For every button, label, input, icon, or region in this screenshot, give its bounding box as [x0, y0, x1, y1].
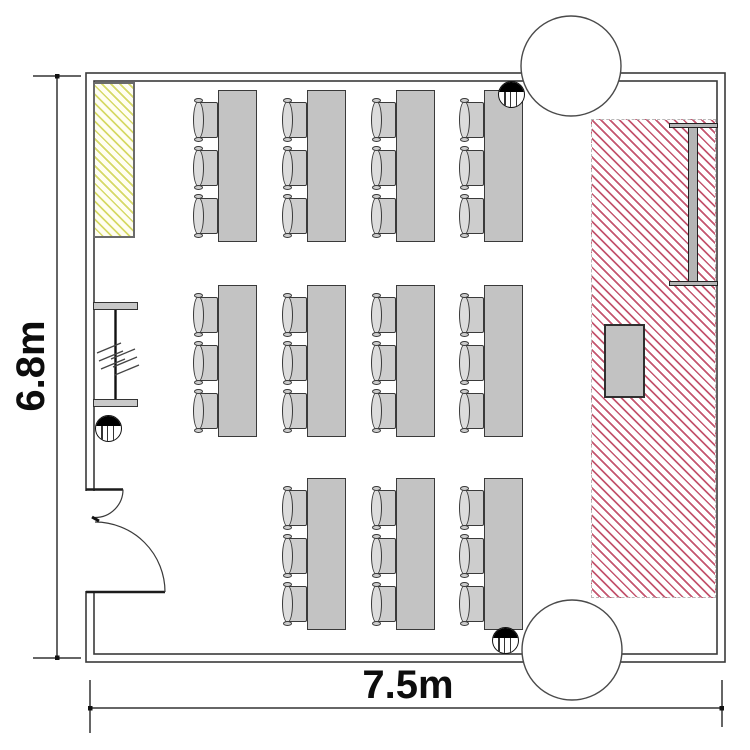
plan-linework [0, 0, 750, 750]
dimension-dot [55, 74, 60, 79]
round-column-top [521, 16, 621, 116]
round-column-bottom [522, 600, 622, 700]
floor-plan: 7.5m 6.8m [0, 0, 750, 750]
dimension-dot [720, 706, 725, 711]
dimension-dot [88, 706, 93, 711]
inner-wall [94, 81, 717, 654]
dimension-dot [55, 656, 60, 661]
door-opening [83, 491, 98, 591]
